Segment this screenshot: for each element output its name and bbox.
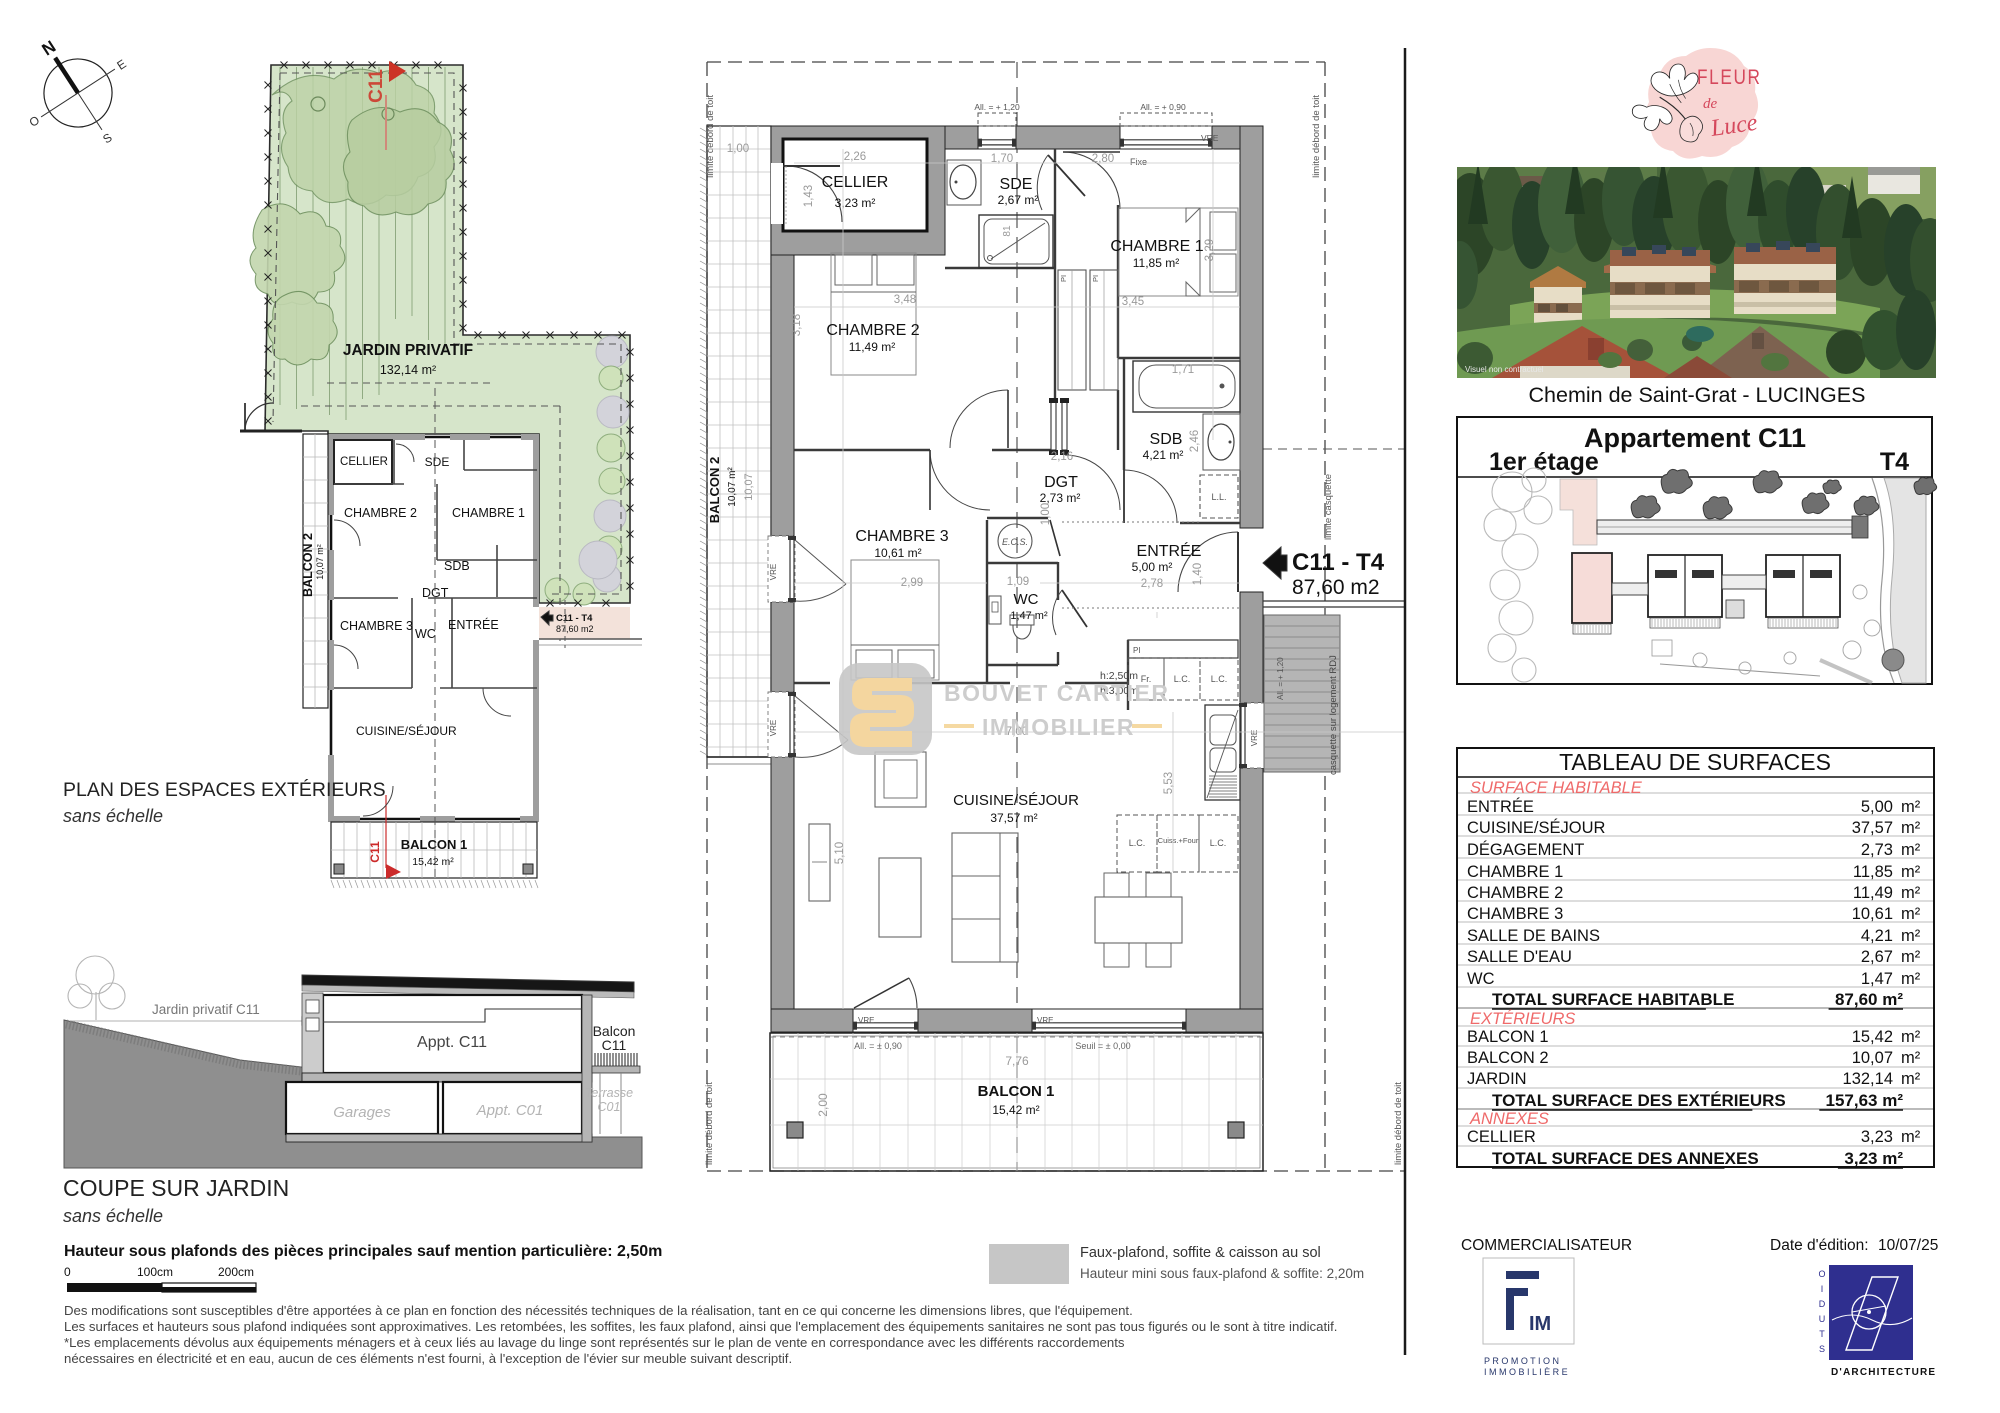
svg-text:3,45: 3,45: [1122, 296, 1144, 308]
svg-text:5,00 m²: 5,00 m²: [1132, 560, 1173, 574]
svg-text:T4: T4: [1880, 448, 1909, 476]
svg-text:CHAMBRE 1: CHAMBRE 1: [1467, 863, 1563, 881]
svg-text:CHAMBRE 3: CHAMBRE 3: [855, 528, 948, 545]
svg-text:P R O M O T I O N: P R O M O T I O N: [1484, 1356, 1559, 1366]
svg-text:2,78: 2,78: [1141, 578, 1163, 590]
svg-text:VRE: VRE: [1037, 1016, 1053, 1025]
svg-text:PI: PI: [1091, 275, 1100, 282]
svg-text:10,07 m²: 10,07 m²: [727, 467, 738, 507]
svg-text:C11: C11: [366, 69, 387, 103]
svg-text:m²: m²: [1901, 905, 1921, 923]
svg-text:C11: C11: [602, 1037, 627, 1053]
svg-text:FLEUR: FLEUR: [1697, 67, 1762, 90]
svg-text:2,80: 2,80: [1092, 153, 1114, 165]
svg-text:CELLIER: CELLIER: [1467, 1128, 1536, 1146]
svg-text:nécessaires en électricité et: nécessaires en électricité et en eau, au…: [64, 1351, 792, 1366]
svg-text:C01: C01: [598, 1100, 621, 1114]
svg-text:VRE: VRE: [769, 720, 778, 736]
svg-text:Cuiss.+Four: Cuiss.+Four: [1158, 836, 1199, 845]
svg-text:2,00: 2,00: [816, 1093, 830, 1117]
svg-text:BALCON 2: BALCON 2: [301, 533, 315, 597]
svg-text:T: T: [1819, 1329, 1825, 1339]
svg-text:DGT: DGT: [1044, 474, 1078, 491]
svg-text:CHAMBRE 2: CHAMBRE 2: [826, 322, 919, 339]
svg-text:10,61 m²: 10,61 m²: [874, 546, 921, 560]
svg-text:CHAMBRE 1: CHAMBRE 1: [1110, 238, 1203, 255]
svg-text:D'ARCHITECTURE: D'ARCHITECTURE: [1831, 1367, 1936, 1378]
svg-text:2,26: 2,26: [844, 151, 866, 163]
svg-text:ANNEXES: ANNEXES: [1469, 1110, 1549, 1128]
svg-text:3,18: 3,18: [791, 314, 803, 336]
svg-text:EXTÉRIEURS: EXTÉRIEURS: [1470, 1009, 1575, 1028]
svg-text:1,47 m²: 1,47 m²: [1010, 610, 1048, 622]
svg-text:COMMERCIALISATEUR: COMMERCIALISATEUR: [1461, 1237, 1632, 1254]
svg-text:1,47: 1,47: [1861, 970, 1893, 988]
svg-text:CUISINE/SÉJOUR: CUISINE/SÉJOUR: [953, 792, 1079, 809]
svg-text:casquette sur logement RDJ: casquette sur logement RDJ: [1328, 655, 1339, 775]
svg-text:37,57 m²: 37,57 m²: [990, 811, 1037, 825]
svg-text:BALCON 1: BALCON 1: [401, 837, 467, 852]
svg-text:SALLE D'EAU: SALLE D'EAU: [1467, 948, 1572, 966]
svg-text:1er étage: 1er étage: [1489, 448, 1599, 476]
svg-text:1,09: 1,09: [1007, 576, 1029, 588]
svg-text:L.C.: L.C.: [1174, 674, 1191, 684]
svg-text:Les surfaces et hauteurs sous: Les surfaces et hauteurs sous plafond in…: [64, 1319, 1337, 1334]
svg-text:Des modifications sont suscept: Des modifications sont susceptibles d'êt…: [64, 1303, 1133, 1318]
svg-text:de: de: [1703, 96, 1718, 112]
svg-text:Hauteur mini sous faux-plafond: Hauteur mini sous faux-plafond & soffite…: [1080, 1266, 1364, 1281]
svg-text:m²: m²: [1901, 1128, 1921, 1146]
svg-text:2,73 m²: 2,73 m²: [1040, 491, 1081, 505]
svg-text:VRE: VRE: [858, 1016, 874, 1025]
svg-text:m²: m²: [1901, 1028, 1921, 1046]
svg-text:Chemin de Saint-Grat - LUCINGE: Chemin de Saint-Grat - LUCINGES: [1529, 383, 1866, 407]
svg-text:m²: m²: [1901, 863, 1921, 881]
svg-text:1,40: 1,40: [1192, 563, 1204, 585]
svg-text:4,21 m²: 4,21 m²: [1143, 448, 1184, 462]
svg-text:1,70: 1,70: [991, 153, 1013, 165]
svg-text:4,21: 4,21: [1861, 927, 1893, 945]
svg-text:Appt. C01: Appt. C01: [476, 1102, 544, 1119]
svg-text:3,23: 3,23: [1861, 1128, 1893, 1146]
svg-text:limite casquette: limite casquette: [1323, 474, 1334, 540]
svg-text:JARDIN: JARDIN: [1467, 1070, 1527, 1088]
svg-text:sans échelle: sans échelle: [63, 1206, 163, 1226]
svg-text:SDE: SDE: [425, 455, 450, 469]
svg-text:m²: m²: [1901, 819, 1921, 837]
svg-text:Terrasse: Terrasse: [585, 1086, 633, 1100]
svg-text:Faux-plafond, soffite & caisso: Faux-plafond, soffite & caisson au sol: [1080, 1245, 1321, 1261]
svg-text:ENTRÉE: ENTRÉE: [1137, 541, 1202, 560]
svg-text:132,14: 132,14: [1843, 1070, 1893, 1088]
svg-text:SALLE DE BAINS: SALLE DE BAINS: [1467, 927, 1600, 945]
svg-text:sans échelle: sans échelle: [63, 806, 163, 826]
svg-text:1,00: 1,00: [1040, 503, 1052, 525]
svg-text:3,23 m²: 3,23 m²: [1844, 1149, 1903, 1168]
svg-text:limite débord de toit: limite débord de toit: [1393, 1082, 1404, 1165]
svg-text:C11 - T4: C11 - T4: [556, 613, 593, 624]
svg-text:2,46: 2,46: [1189, 430, 1201, 452]
svg-text:0: 0: [64, 1265, 71, 1279]
svg-text:m²: m²: [1901, 970, 1921, 988]
svg-text:TOTAL SURFACE HABITABLE: TOTAL SURFACE HABITABLE: [1492, 990, 1734, 1009]
svg-text:DÉGAGEMENT: DÉGAGEMENT: [1467, 840, 1584, 859]
svg-text:SDB: SDB: [444, 559, 470, 573]
svg-text:CELLIER: CELLIER: [822, 174, 889, 191]
svg-text:3,23 m²: 3,23 m²: [835, 196, 876, 210]
svg-text:BALCON 1: BALCON 1: [1467, 1028, 1549, 1046]
svg-text:I: I: [1821, 1284, 1824, 1294]
svg-text:L.C.: L.C.: [1211, 674, 1228, 684]
svg-text:VRE: VRE: [769, 564, 778, 580]
svg-text:87,60 m²: 87,60 m²: [1835, 990, 1903, 1009]
svg-text:CHAMBRE 3: CHAMBRE 3: [340, 619, 413, 633]
svg-text:*Les emplacements dévolus aux: *Les emplacements dévolus aux équipement…: [64, 1335, 1125, 1350]
svg-text:TABLEAU DE SURFACES: TABLEAU DE SURFACES: [1559, 749, 1831, 775]
svg-text:CHAMBRE 3: CHAMBRE 3: [1467, 905, 1563, 923]
svg-text:10,07: 10,07: [743, 473, 755, 501]
svg-text:WC: WC: [415, 627, 436, 641]
svg-text:15,42: 15,42: [1852, 1028, 1893, 1046]
svg-text:10,07: 10,07: [1852, 1049, 1893, 1067]
svg-text:37,57: 37,57: [1852, 819, 1893, 837]
svg-text:CHAMBRE 2: CHAMBRE 2: [344, 506, 417, 520]
svg-text:m²: m²: [1901, 1049, 1921, 1067]
svg-text:BALCON 2: BALCON 2: [1467, 1049, 1549, 1067]
svg-text:IMMOBILIER: IMMOBILIER: [982, 714, 1135, 740]
svg-text:ENTRÉE: ENTRÉE: [1467, 797, 1534, 816]
svg-text:157,63 m²: 157,63 m²: [1826, 1091, 1904, 1110]
svg-text:PI: PI: [1133, 646, 1141, 655]
svg-text:Date d'édition:: Date d'édition:: [1770, 1237, 1869, 1254]
svg-text:15,42 m²: 15,42 m²: [992, 1103, 1039, 1117]
svg-text:I M M O B I L I È R E: I M M O B I L I È R E: [1484, 1367, 1568, 1377]
svg-text:2,99: 2,99: [901, 577, 923, 589]
svg-text:All. = + 0,90: All. = + 0,90: [1140, 102, 1186, 112]
svg-text:10,61: 10,61: [1852, 905, 1893, 923]
svg-text:E.C.S.: E.C.S.: [1002, 537, 1028, 547]
svg-text:All. = ± 0,90: All. = ± 0,90: [854, 1041, 902, 1051]
svg-text:SURFACE HABITABLE: SURFACE HABITABLE: [1470, 779, 1643, 797]
svg-text:limite débord de toit: limite débord de toit: [704, 1082, 715, 1165]
svg-text:15,42 m²: 15,42 m²: [412, 856, 454, 868]
svg-text:SDB: SDB: [1150, 431, 1183, 448]
svg-text:Luce: Luce: [1708, 110, 1759, 142]
svg-text:L.L.: L.L.: [1211, 492, 1226, 502]
svg-text:Hauteur sous plafonds des pièc: Hauteur sous plafonds des pièces princip…: [64, 1243, 662, 1260]
svg-text:11,49 m²: 11,49 m²: [849, 340, 895, 354]
svg-text:Visuel non contractuel: Visuel non contractuel: [1465, 365, 1544, 374]
svg-text:CUISINE/SÉJOUR: CUISINE/SÉJOUR: [356, 723, 457, 738]
svg-text:3,48: 3,48: [894, 294, 916, 306]
svg-text:10/07/25: 10/07/25: [1878, 1237, 1938, 1254]
svg-text:2,16: 2,16: [1051, 451, 1073, 463]
svg-text:Appt. C11: Appt. C11: [417, 1034, 487, 1051]
svg-text:JARDIN PRIVATIF: JARDIN PRIVATIF: [343, 342, 473, 359]
svg-text:m²: m²: [1901, 1070, 1921, 1088]
svg-text:PI: PI: [1059, 275, 1068, 282]
svg-text:O: O: [1818, 1269, 1825, 1279]
svg-text:E: E: [114, 57, 128, 73]
svg-text:PLAN DES ESPACES EXTÉRIEURS: PLAN DES ESPACES EXTÉRIEURS: [63, 778, 386, 801]
svg-text:BALCON 1: BALCON 1: [978, 1083, 1055, 1100]
svg-text:m²: m²: [1901, 927, 1921, 945]
svg-text:S: S: [1819, 1344, 1825, 1354]
svg-text:2,67: 2,67: [1861, 948, 1893, 966]
svg-text:3,29: 3,29: [1204, 239, 1216, 261]
svg-text:N: N: [39, 37, 60, 60]
svg-text:U: U: [1819, 1314, 1826, 1324]
svg-text:87,60 m2: 87,60 m2: [556, 624, 594, 634]
svg-text:7,76: 7,76: [1005, 1054, 1029, 1068]
svg-text:CUISINE/SÉJOUR: CUISINE/SÉJOUR: [1467, 818, 1606, 837]
svg-text:200cm: 200cm: [218, 1265, 254, 1279]
svg-text:Seuil = ± 0,00: Seuil = ± 0,00: [1075, 1041, 1130, 1051]
svg-text:Fixe: Fixe: [1130, 157, 1147, 167]
svg-text:ENTRÉE: ENTRÉE: [448, 617, 499, 632]
svg-text:m²: m²: [1901, 798, 1921, 816]
svg-text:1,00: 1,00: [727, 143, 749, 155]
svg-text:2,67 m²: 2,67 m²: [998, 193, 1039, 207]
svg-text:L.C.: L.C.: [1129, 838, 1146, 848]
svg-text:m²: m²: [1901, 841, 1921, 859]
svg-text:81: 81: [1002, 225, 1013, 237]
svg-text:BALCON 2: BALCON 2: [707, 457, 722, 523]
svg-text:11,49: 11,49: [1853, 884, 1893, 902]
svg-text:TOTAL SURFACE DES ANNEXES: TOTAL SURFACE DES ANNEXES: [1492, 1149, 1759, 1168]
svg-text:WC: WC: [1014, 591, 1039, 608]
svg-text:11,85 m²: 11,85 m²: [1133, 256, 1179, 270]
svg-text:Jardin privatif C11: Jardin privatif C11: [152, 1002, 260, 1017]
svg-text:CELLIER: CELLIER: [340, 456, 388, 468]
svg-text:5,53: 5,53: [1163, 772, 1175, 794]
svg-text:IM: IM: [1529, 1313, 1551, 1335]
svg-text:5,10: 5,10: [834, 842, 846, 864]
svg-text:All. = + 1,20: All. = + 1,20: [974, 102, 1020, 112]
svg-text:CHAMBRE 1: CHAMBRE 1: [452, 506, 525, 520]
svg-text:Garages: Garages: [333, 1104, 391, 1121]
svg-text:2,73: 2,73: [1861, 841, 1893, 859]
svg-text:Appartement C11: Appartement C11: [1584, 423, 1806, 453]
svg-text:TOTAL SURFACE DES EXTÉRIEURS: TOTAL SURFACE DES EXTÉRIEURS: [1492, 1091, 1786, 1110]
svg-text:C11: C11: [368, 841, 382, 863]
svg-text:m²: m²: [1901, 884, 1921, 902]
svg-text:1,71: 1,71: [1172, 364, 1194, 376]
svg-text:D: D: [1819, 1299, 1826, 1309]
svg-text:87,60 m2: 87,60 m2: [1292, 576, 1380, 599]
svg-text:limite débord de toit: limite débord de toit: [1311, 95, 1322, 178]
svg-text:1,43: 1,43: [803, 185, 815, 207]
svg-text:S: S: [100, 130, 114, 146]
svg-text:SDE: SDE: [1000, 176, 1033, 193]
svg-text:10,07 m²: 10,07 m²: [315, 544, 325, 580]
svg-text:BOUVET CARTIER: BOUVET CARTIER: [944, 680, 1169, 706]
svg-text:All. = + 1,20: All. = + 1,20: [1276, 657, 1285, 700]
svg-text:L.C.: L.C.: [1210, 838, 1227, 848]
svg-text:11,85: 11,85: [1853, 863, 1893, 881]
svg-text:C11 - T4: C11 - T4: [1292, 549, 1385, 576]
svg-text:WC: WC: [1467, 970, 1495, 988]
svg-text:CHAMBRE 2: CHAMBRE 2: [1467, 884, 1563, 902]
svg-text:COUPE SUR JARDIN: COUPE SUR JARDIN: [63, 1175, 289, 1201]
svg-text:O: O: [27, 113, 42, 130]
svg-text:132,14 m²: 132,14 m²: [380, 363, 436, 377]
svg-text:5,00: 5,00: [1861, 798, 1893, 816]
svg-text:VRE: VRE: [1201, 133, 1219, 143]
svg-text:100cm: 100cm: [137, 1265, 173, 1279]
svg-text:m²: m²: [1901, 948, 1921, 966]
